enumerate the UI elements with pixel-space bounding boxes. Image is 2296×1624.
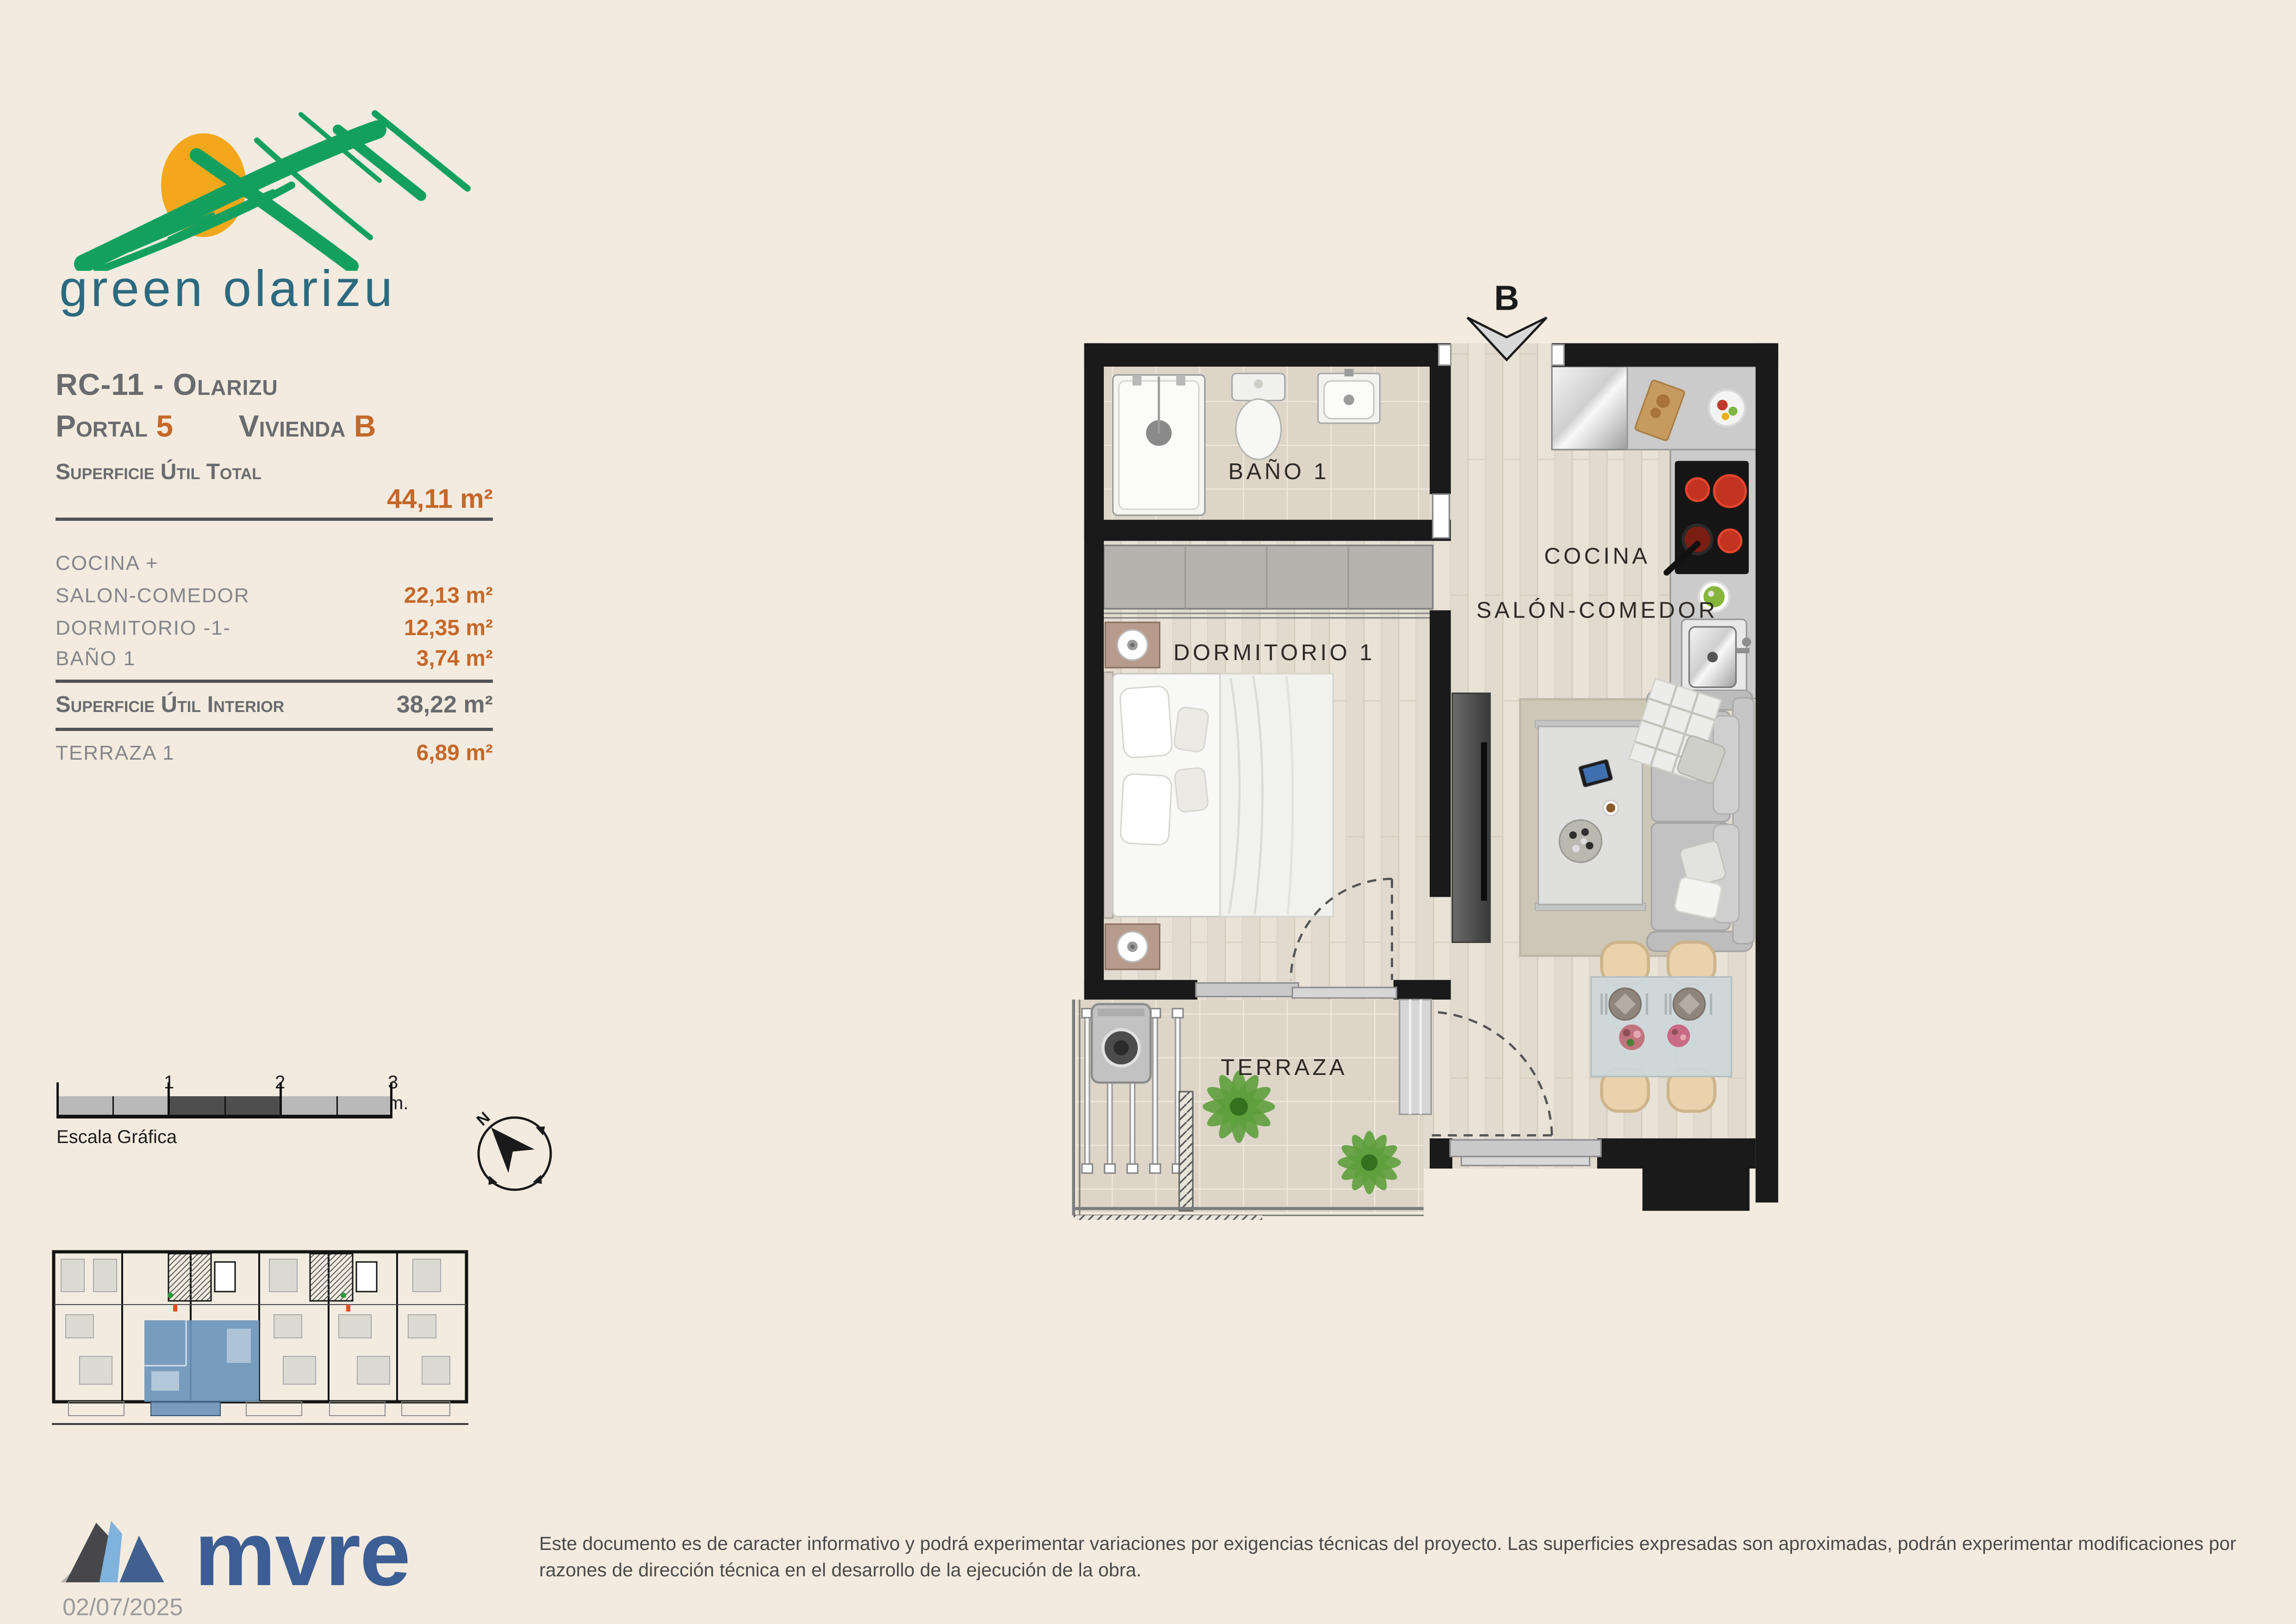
balcony-sliding-door — [1450, 1140, 1601, 1165]
coffee — [1606, 803, 1616, 812]
bathroom-sink — [1318, 369, 1380, 423]
marker-dot — [168, 1293, 173, 1298]
interior-surface-row: Superficie Útil Interior 38,22 m² — [56, 692, 493, 718]
row-label: COCINA + — [56, 552, 159, 575]
door-frame — [1439, 345, 1451, 365]
scale-major-tick — [168, 1082, 170, 1115]
terrace-partition — [1179, 1092, 1193, 1211]
green-olarizu-logo-art — [51, 86, 551, 271]
interior-label: Superficie Útil Interior — [56, 692, 284, 717]
scale-bar — [56, 1096, 392, 1118]
logo-wordmark: green olarizu — [59, 259, 396, 318]
fruit-bowl — [1709, 390, 1745, 426]
portal-unit-line: Portal 5 Vivienda B — [56, 408, 376, 443]
interior-value: 38,22 m² — [397, 691, 493, 718]
dining-table — [1591, 977, 1731, 1076]
cooktop — [1667, 461, 1749, 574]
room-label-living: SALÓN-COMEDOR — [1476, 598, 1718, 623]
graphic-scale: 1 2 3 m. Escala Gráfica — [56, 1072, 392, 1146]
elevator — [215, 1262, 235, 1292]
mvre-logo-icon — [59, 1508, 189, 1592]
fridge — [1552, 367, 1627, 450]
row-value: 22,13 m² — [404, 583, 493, 608]
room-label-bedroom: DORMITORIO 1 — [1173, 640, 1375, 665]
kitchen-sink — [1682, 619, 1751, 695]
scale-minor-tick — [112, 1096, 114, 1115]
brush-strokes-icon — [83, 113, 467, 271]
surface-total-value: 44,11 m² — [56, 483, 493, 514]
compass-spike — [533, 1174, 546, 1187]
table-row: TERRAZA 1 6,89 m² — [56, 742, 493, 765]
apartment-floorplan: B BAÑO 1 COCINA SALÓN-COMEDOR DORMITORIO… — [1069, 271, 1823, 1220]
marker-door — [346, 1305, 350, 1312]
scale-major-tick — [390, 1082, 392, 1115]
flowers — [1619, 1024, 1644, 1050]
food — [1708, 591, 1714, 597]
elevator — [356, 1262, 377, 1292]
row-label: SALON-COMEDOR — [56, 584, 250, 607]
scale-minor-tick — [336, 1096, 338, 1115]
marker-dot — [341, 1293, 346, 1298]
vivienda-letter: B — [354, 409, 376, 443]
toilet — [1232, 374, 1285, 460]
north-arrow: N — [468, 1102, 535, 1173]
table-row: DORMITORIO -1- 12,35 m² — [56, 617, 493, 640]
terrace-label: TERRAZA 1 — [56, 742, 175, 764]
portal-number: 5 — [156, 409, 173, 443]
divider — [56, 680, 493, 683]
room-label-kitchen: COCINA — [1544, 543, 1650, 568]
divider — [56, 728, 493, 731]
coffee-table — [1535, 720, 1645, 911]
washing-machine — [1092, 1004, 1151, 1082]
scale-major-tick — [280, 1082, 282, 1115]
fruit — [1717, 400, 1728, 411]
vivienda-label: Vivienda — [239, 409, 346, 443]
door-frame — [1552, 345, 1564, 365]
document-date: 02/07/2025 — [62, 1593, 183, 1621]
marker-door — [173, 1305, 177, 1312]
row-label: BAÑO 1 — [56, 647, 136, 670]
flowers — [1668, 1024, 1690, 1047]
nightstand — [1105, 924, 1159, 969]
terrace-window — [1400, 999, 1431, 1114]
compass-spike — [535, 1122, 548, 1136]
fruit — [1722, 412, 1729, 420]
row-label: DORMITORIO -1- — [56, 617, 231, 639]
section-hatch — [1074, 1215, 1263, 1220]
fruit — [1729, 406, 1738, 416]
mvre-wordmark: mvre — [194, 1501, 410, 1606]
stair-core — [168, 1254, 211, 1301]
building-overview-plan — [52, 1250, 468, 1430]
table-row: BAÑO 1 3,74 m² — [56, 647, 493, 670]
bathroom-door — [1433, 494, 1450, 538]
terrace-row — [68, 1402, 450, 1416]
brochure-page: green olarizu RC-11 - Olarizu Portal 5 V… — [0, 0, 2296, 1624]
nightstand — [1105, 622, 1159, 668]
stair-core — [310, 1254, 353, 1301]
bed — [1104, 672, 1333, 918]
unit-entry-marker: B — [1494, 279, 1519, 318]
scale-major-tick — [56, 1082, 59, 1115]
room-label-bathroom: BAÑO 1 — [1228, 459, 1329, 484]
portal-label: Portal — [56, 409, 148, 443]
disclaimer-text: Este documento es de caracter informativ… — [539, 1530, 2289, 1583]
table-row: SALON-COMEDOR 22,13 m² — [56, 584, 493, 607]
terrace-value: 6,89 m² — [417, 740, 493, 766]
surface-total-label: Superficie Útil Total — [56, 459, 261, 485]
shower — [1113, 375, 1205, 515]
table-row: COCINA + — [56, 552, 493, 575]
row-value: 12,35 m² — [404, 615, 493, 641]
tv-unit — [1452, 693, 1490, 943]
room-label-terrace: TERRAZA — [1221, 1055, 1348, 1080]
compass-icon: N — [468, 1102, 561, 1199]
scale-caption: Escala Gráfica — [56, 1127, 177, 1148]
unit-reference: RC-11 - Olarizu — [56, 367, 278, 402]
scale-minor-tick — [224, 1096, 226, 1115]
row-value: 3,74 m² — [417, 646, 493, 671]
wardrobe — [1104, 545, 1433, 618]
highlighted-unit — [144, 1320, 259, 1416]
divider — [56, 518, 493, 521]
